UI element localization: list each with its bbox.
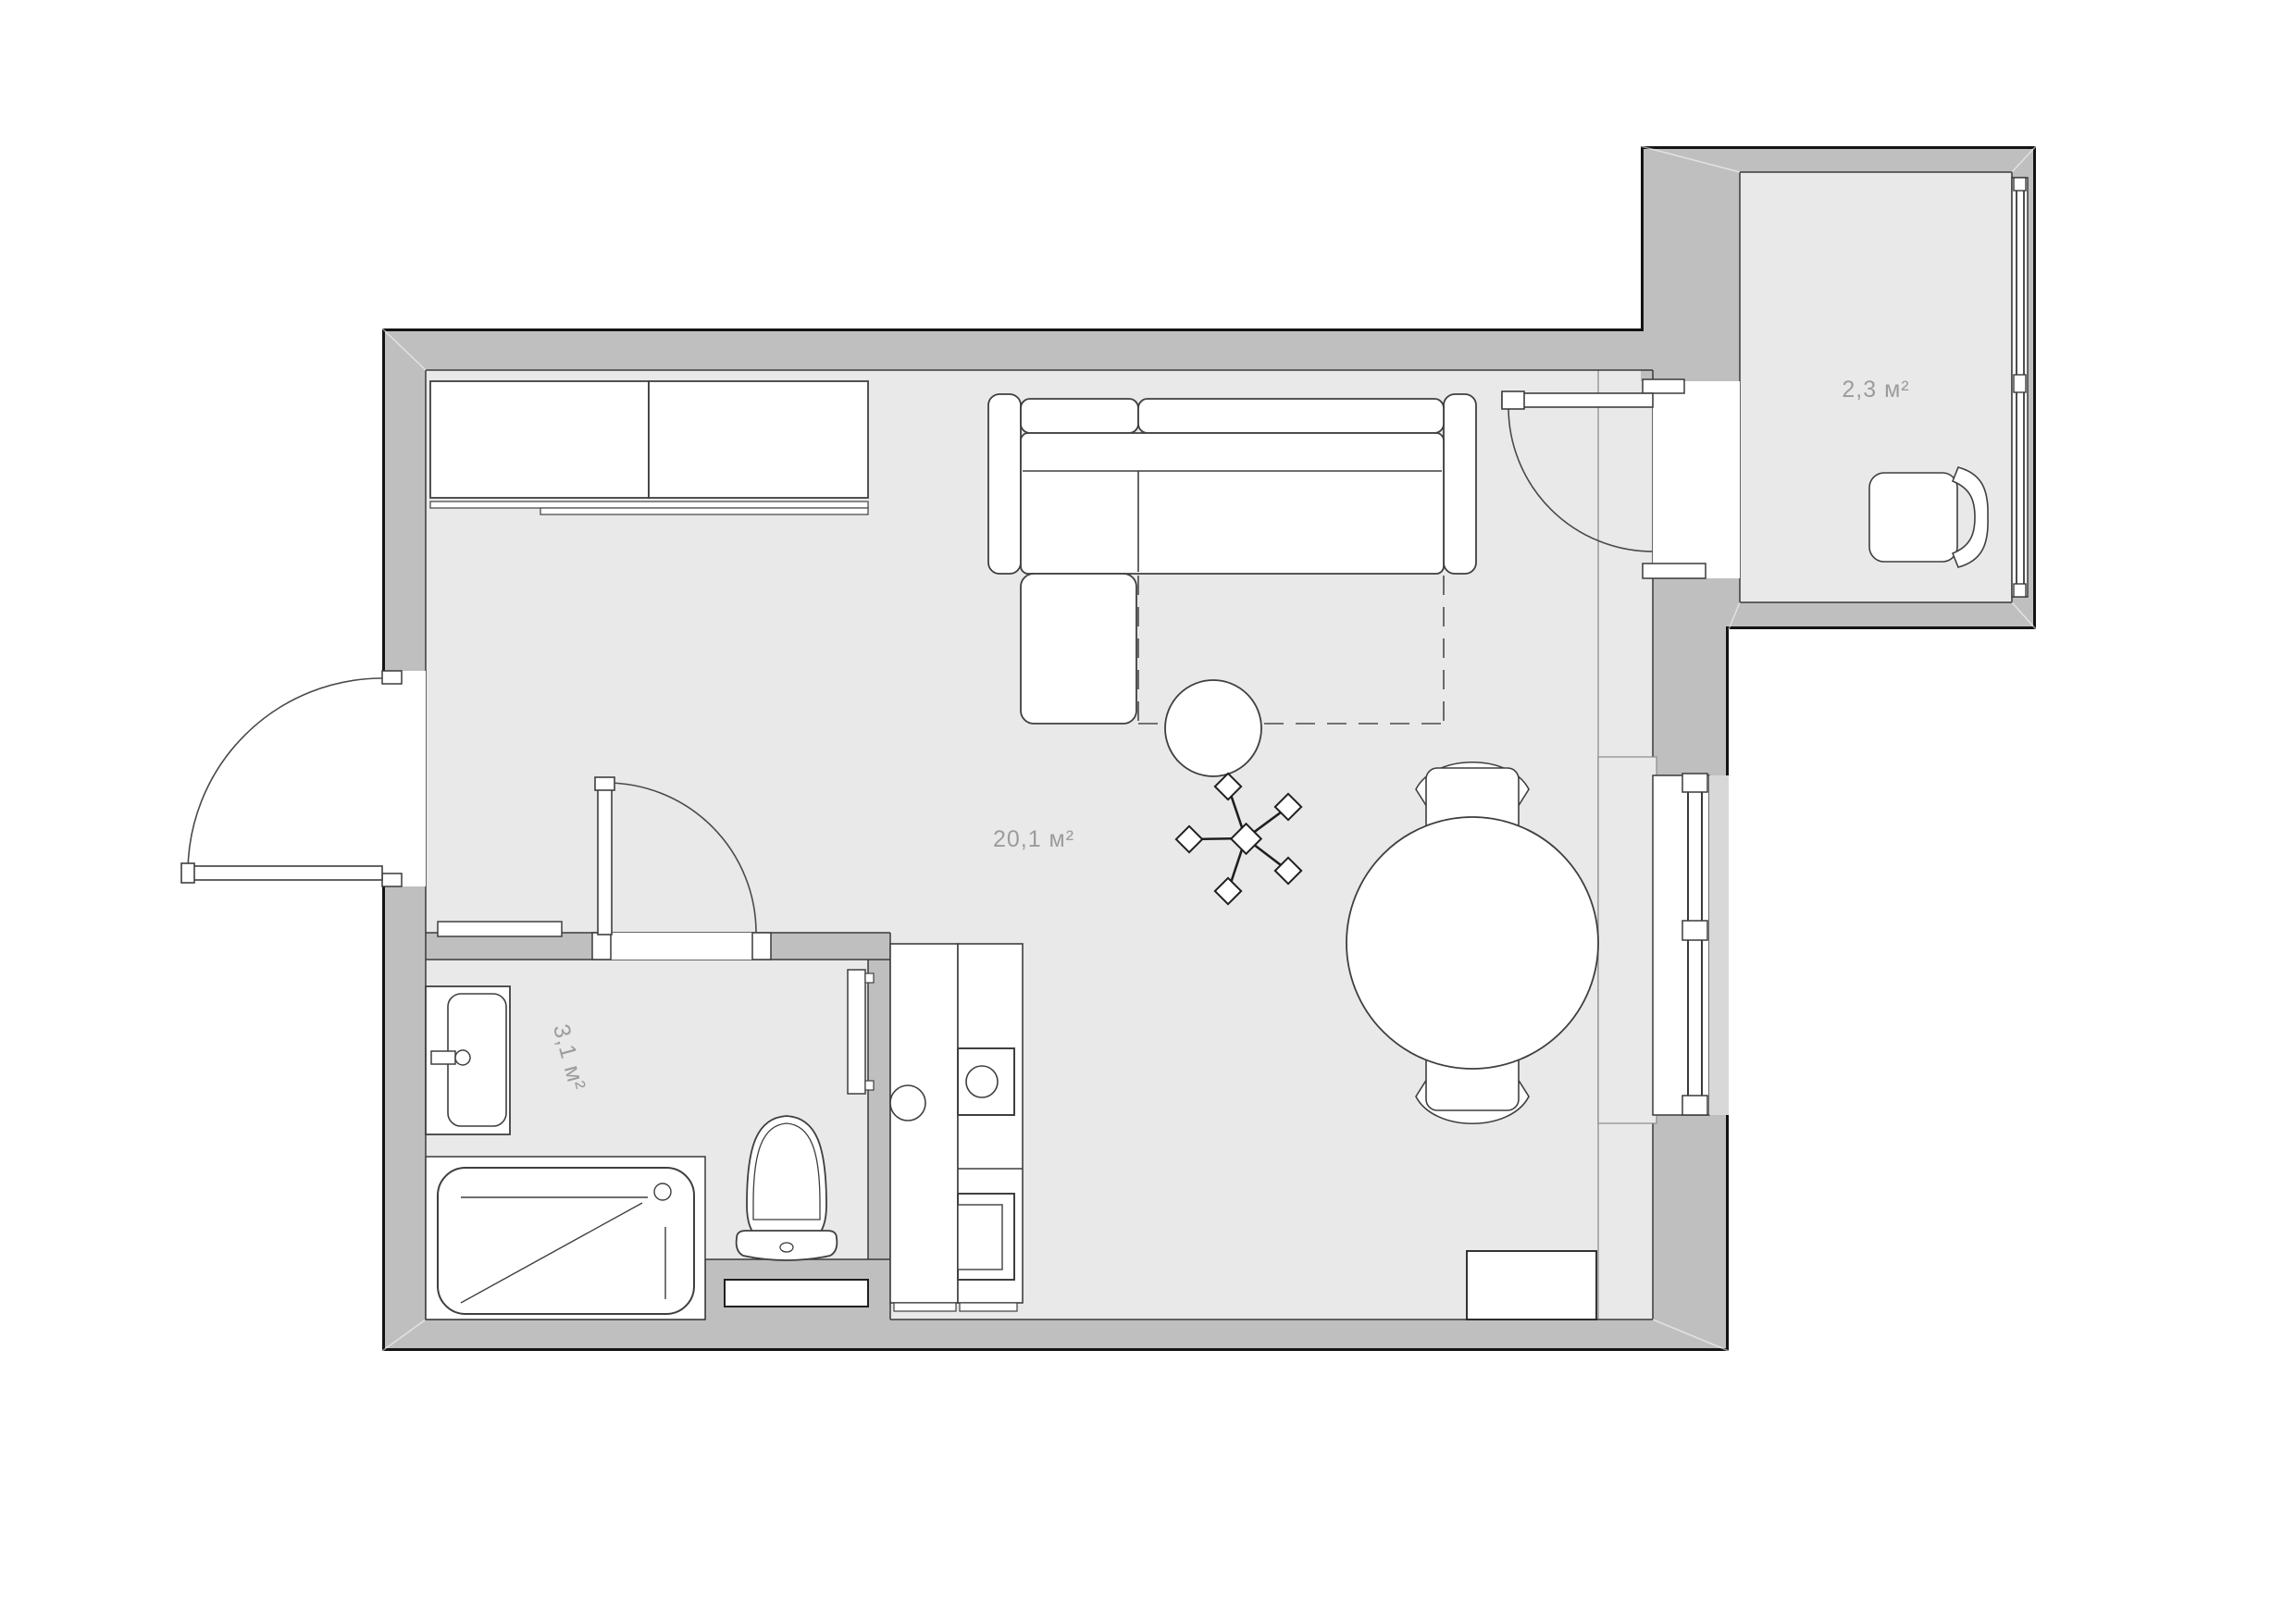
wardrobe-sliding-rail (430, 502, 868, 508)
sofa-seat (1021, 433, 1444, 574)
faucet (431, 1051, 455, 1064)
kitchen-plinth (960, 1303, 1017, 1311)
sofa-armrest-left (988, 394, 1021, 574)
wall-shelf (438, 922, 562, 936)
balcony-door-leaf-cap (1502, 391, 1524, 409)
kitchen-counter-left-column (890, 944, 958, 1303)
bathroom-door-leaf-cap (595, 777, 614, 790)
wall-niche (725, 1280, 868, 1307)
window-outer-ledge (1709, 775, 1729, 1115)
floor-plan-drawing: 20,1 м² 3,1 м² 2,3 м² (0, 0, 2296, 1623)
sofa-back-cushion (1021, 399, 1138, 433)
wall-balcony-top (1641, 146, 2036, 172)
balcony-door-opening (1653, 381, 1740, 578)
faucet-knob (455, 1050, 470, 1065)
window-niche (1653, 775, 1709, 1115)
kitchen-plinth (894, 1303, 956, 1311)
kitchen-counter (890, 944, 1023, 1311)
window-sill (1598, 757, 1657, 1123)
bathtub-drain (654, 1183, 671, 1200)
entrance-door-leaf-cap (181, 863, 194, 883)
balcony-window-frame-block (2014, 584, 2026, 597)
bathroom-door-leaf (598, 780, 612, 935)
kitchen-knob (890, 1085, 925, 1121)
entrance-door-leaf (185, 866, 382, 880)
balcony-window-frame-block (2014, 178, 2026, 191)
area-label-living: 20,1 м² (993, 826, 1074, 852)
balcony-chair-seat (1869, 473, 1957, 562)
floor-plan: 20,1 м² 3,1 м² 2,3 м² (0, 0, 2296, 1623)
entrance-door-jamb (382, 873, 402, 886)
wardrobe-section (430, 381, 649, 498)
entrance-door-jamb (382, 671, 402, 684)
pouf-table (1165, 680, 1261, 776)
bathroom-door-jamb (752, 933, 771, 960)
balcony-door-jamb (1643, 564, 1706, 578)
bathroom-door-opening (592, 933, 771, 960)
wardrobe-section (649, 381, 868, 498)
window-frame-block (1682, 1096, 1707, 1115)
balcony-window-frame-block (2014, 375, 2026, 392)
window-frame-block (1682, 921, 1707, 940)
oven-door (958, 1205, 1002, 1270)
entrance-door (181, 671, 426, 886)
window (1598, 757, 1729, 1123)
wall-left-lower (382, 886, 426, 1351)
wall-balcony-left (1641, 146, 1740, 381)
round-dining-table (1347, 817, 1598, 1069)
sofa-armrest-right (1444, 394, 1476, 574)
wall-balcony-bottom (1729, 602, 2036, 629)
entrance-door-opening (382, 671, 426, 886)
sliding-wardrobe (430, 381, 868, 514)
towel-rail-mount (865, 973, 874, 983)
bathroom-door-jamb (592, 933, 611, 960)
balcony-window (2012, 178, 2028, 597)
low-cabinet (1467, 1251, 1596, 1319)
wall-top (382, 328, 1653, 370)
wardrobe-sliding-door (540, 508, 868, 514)
window-frame-block (1682, 774, 1707, 792)
area-label-balcony: 2,3 м² (1842, 377, 1909, 403)
towel-rail-mount (865, 1081, 874, 1090)
wall-left-upper (382, 328, 426, 671)
toilet-flush-button (780, 1243, 793, 1252)
cooktop-burner (966, 1066, 998, 1097)
sofa-back-cushion (1138, 399, 1444, 433)
balcony-door-jamb (1643, 379, 1684, 393)
wall-bottom (382, 1319, 1729, 1351)
sofa-chaise (1021, 574, 1136, 724)
towel-rail (848, 970, 865, 1094)
entrance-door-swing-arc (188, 678, 382, 873)
